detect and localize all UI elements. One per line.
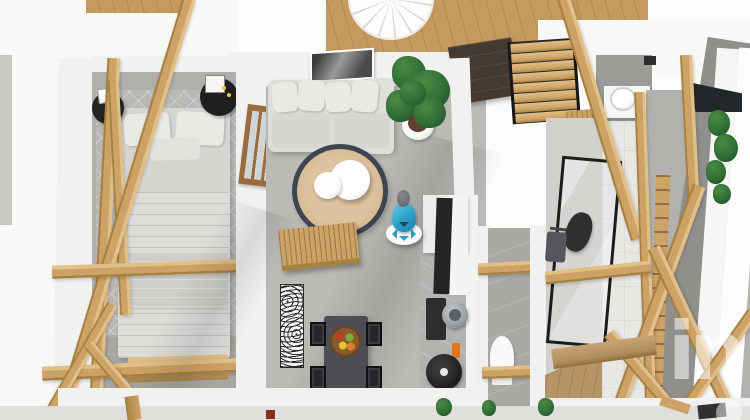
arrow-right-icon: [411, 229, 421, 239]
exterior-bottom: [0, 406, 750, 420]
dining-chair: [310, 322, 326, 346]
tall-black-panel: [433, 198, 452, 294]
photo-frame: [205, 75, 225, 93]
sofa-cushion: [350, 79, 380, 113]
climbing-plant: [714, 134, 738, 162]
upper-wood-floor-right: [538, 0, 648, 22]
arrow-left-icon: [387, 229, 397, 239]
watermark-logo: in: [668, 312, 740, 392]
avatar-head: [397, 190, 410, 207]
coffee-table-small: [314, 172, 341, 199]
avatar-body-point: [399, 222, 409, 232]
kitchen-sink-drain: [449, 309, 461, 321]
sofa-seat: [334, 114, 390, 148]
exterior-left-wedge: [0, 55, 12, 225]
climbing-plant: [706, 160, 726, 184]
washbasin: [612, 89, 634, 109]
wall-art: [310, 48, 374, 83]
sofa-cushion: [324, 81, 352, 112]
fruit-bowl: [332, 328, 359, 355]
sofa-cushion: [297, 79, 326, 112]
spiral-staircase-treads: [350, 0, 432, 38]
decor-dot: [227, 93, 231, 97]
viewpoint-avatar[interactable]: [382, 188, 426, 250]
sideboard: [278, 222, 360, 271]
plant-foliage: [400, 80, 426, 106]
decor-dot: [222, 86, 226, 90]
red-object: [266, 410, 275, 419]
sofa-seat: [272, 114, 330, 148]
bath-mat: [545, 231, 567, 262]
sofa-cushion: [271, 81, 300, 113]
floorplan-render: in: [0, 0, 750, 420]
dining-chair: [366, 366, 382, 390]
climbing-plant: [708, 110, 730, 136]
bottom-wall-left: [58, 388, 482, 406]
spiral-staircase: [348, 0, 434, 40]
bush: [482, 400, 496, 416]
dining-chair: [310, 366, 326, 390]
watermark-fragment: [716, 400, 742, 420]
wc-right-wall: [530, 226, 546, 420]
decor-panel: [280, 284, 304, 368]
timber-tie-beam: [482, 365, 534, 379]
arrow-down-icon: [399, 236, 409, 246]
dining-chair: [366, 322, 382, 346]
climbing-plant: [713, 184, 731, 204]
vent: [644, 56, 656, 65]
round-basin-drain: [440, 368, 448, 376]
cushion: [150, 137, 201, 161]
bush: [538, 398, 554, 416]
upper-wood-floor-left: [86, 0, 182, 13]
bush: [436, 398, 452, 416]
